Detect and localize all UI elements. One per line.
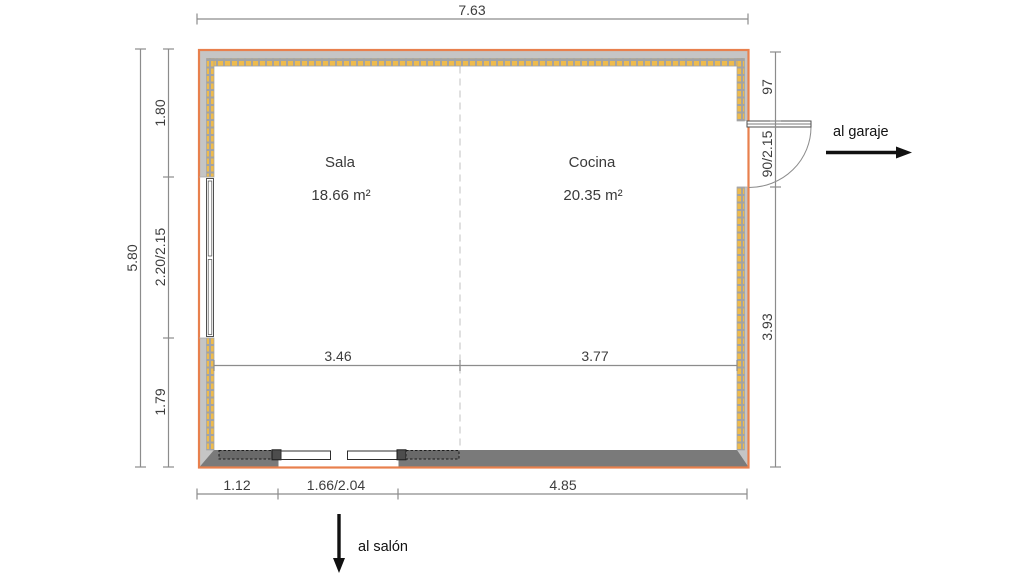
salon-arrow-head-icon [333, 558, 345, 573]
hatch-left-upper [207, 59, 215, 178]
room-area-cocina: 20.35 m² [563, 187, 622, 204]
floor-plan: 7.63 5.80 1.80 2.20/2.15 1.79 97 90/2.15… [0, 0, 1024, 576]
room-area-sala: 18.66 m² [311, 187, 370, 204]
dimension-top: 7.63 [197, 2, 748, 25]
sliding-stop-right [397, 450, 406, 460]
hatch-left-lower [207, 338, 215, 450]
sliding-stop-left [272, 450, 281, 460]
dim-label-left-2: 2.20/2.15 [152, 228, 168, 287]
room-interior [214, 67, 737, 451]
room-name-cocina: Cocina [569, 154, 616, 171]
dim-label-interior-1: 3.46 [324, 348, 351, 364]
salon-label: al salón [358, 539, 408, 555]
garage-arrow-head-icon [896, 147, 912, 159]
dim-label-bottom-2: 1.66/2.04 [307, 477, 366, 493]
annotation-garage: al garaje [826, 124, 912, 159]
sliding-leaf-left [281, 451, 331, 460]
annotation-salon: al salón [333, 514, 408, 573]
dim-label-interior-2: 3.77 [581, 348, 608, 364]
hatch-right-lower [737, 187, 745, 450]
dim-label-right-2: 90/2.15 [759, 130, 775, 177]
walls [198, 49, 750, 469]
dim-label-bottom-3: 4.85 [549, 477, 576, 493]
dim-label-right-3: 3.93 [759, 313, 775, 340]
dim-label-left-3: 1.79 [152, 388, 168, 415]
dim-label-total-width: 7.63 [458, 2, 485, 18]
window-frame [207, 179, 214, 337]
dim-label-total-height: 5.80 [124, 244, 140, 271]
sliding-leaf-right [348, 451, 398, 460]
dim-label-bottom-1: 1.12 [223, 477, 250, 493]
sliding-rail-right [406, 451, 459, 460]
room-name-sala: Sala [325, 154, 356, 171]
garage-label: al garaje [833, 124, 889, 140]
dimension-right: 97 90/2.15 3.93 [759, 52, 781, 467]
dim-label-left-1: 1.80 [152, 99, 168, 126]
dimension-bottom: 1.12 1.66/2.04 4.85 [197, 477, 747, 500]
hatch-right-upper [737, 59, 745, 122]
dimension-left-inner: 1.80 2.20/2.15 1.79 [152, 49, 174, 467]
sliding-rail-left [219, 451, 272, 460]
dimension-left-outer: 5.80 [124, 49, 146, 467]
hatch-top [207, 59, 744, 67]
dim-label-right-1: 97 [759, 79, 775, 95]
door-opening [737, 121, 748, 187]
